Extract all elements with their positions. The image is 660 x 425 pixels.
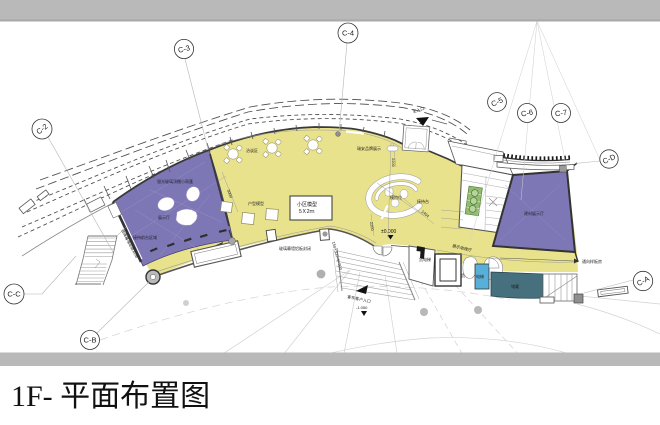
svg-text:5Ｘ2ｍ: 5Ｘ2ｍ bbox=[299, 209, 315, 215]
svg-text:C-4: C-4 bbox=[342, 29, 354, 38]
svg-text:2200: 2200 bbox=[391, 158, 396, 168]
svg-text:C-7: C-7 bbox=[554, 108, 567, 119]
svg-text:户型模型: 户型模型 bbox=[248, 200, 264, 206]
svg-text:-1.050: -1.050 bbox=[356, 305, 368, 310]
svg-text:接待台: 接待台 bbox=[417, 198, 429, 204]
svg-text:瑞安品牌展示: 瑞安品牌展示 bbox=[357, 145, 381, 151]
svg-text:小区模型: 小区模型 bbox=[297, 201, 317, 208]
svg-text:储藏: 储藏 bbox=[511, 283, 519, 289]
svg-text:货电梯: 货电梯 bbox=[419, 256, 431, 262]
svg-text:1F- 平面布置图: 1F- 平面布置图 bbox=[11, 380, 210, 413]
svg-text:±0.000: ±0.000 bbox=[381, 229, 396, 235]
svg-text:C-C: C-C bbox=[7, 290, 21, 299]
svg-text:银光玻璃顶棚小雨蓬: 银光玻璃顶棚小雨蓬 bbox=[157, 178, 193, 184]
svg-text:洽谈区: 洽谈区 bbox=[246, 147, 258, 153]
svg-text:电梯: 电梯 bbox=[476, 273, 484, 279]
svg-text:接待前台区域: 接待前台区域 bbox=[133, 234, 157, 240]
svg-text:展示厅: 展示厅 bbox=[158, 214, 170, 220]
svg-text:建材展示厅: 建材展示厅 bbox=[524, 210, 544, 216]
svg-text:通向样板房: 通向样板房 bbox=[582, 258, 602, 264]
svg-text:C-B: C-B bbox=[84, 336, 97, 345]
svg-text:玻璃幕墙铝板封闭: 玻璃幕墙铝板封闭 bbox=[279, 245, 311, 251]
